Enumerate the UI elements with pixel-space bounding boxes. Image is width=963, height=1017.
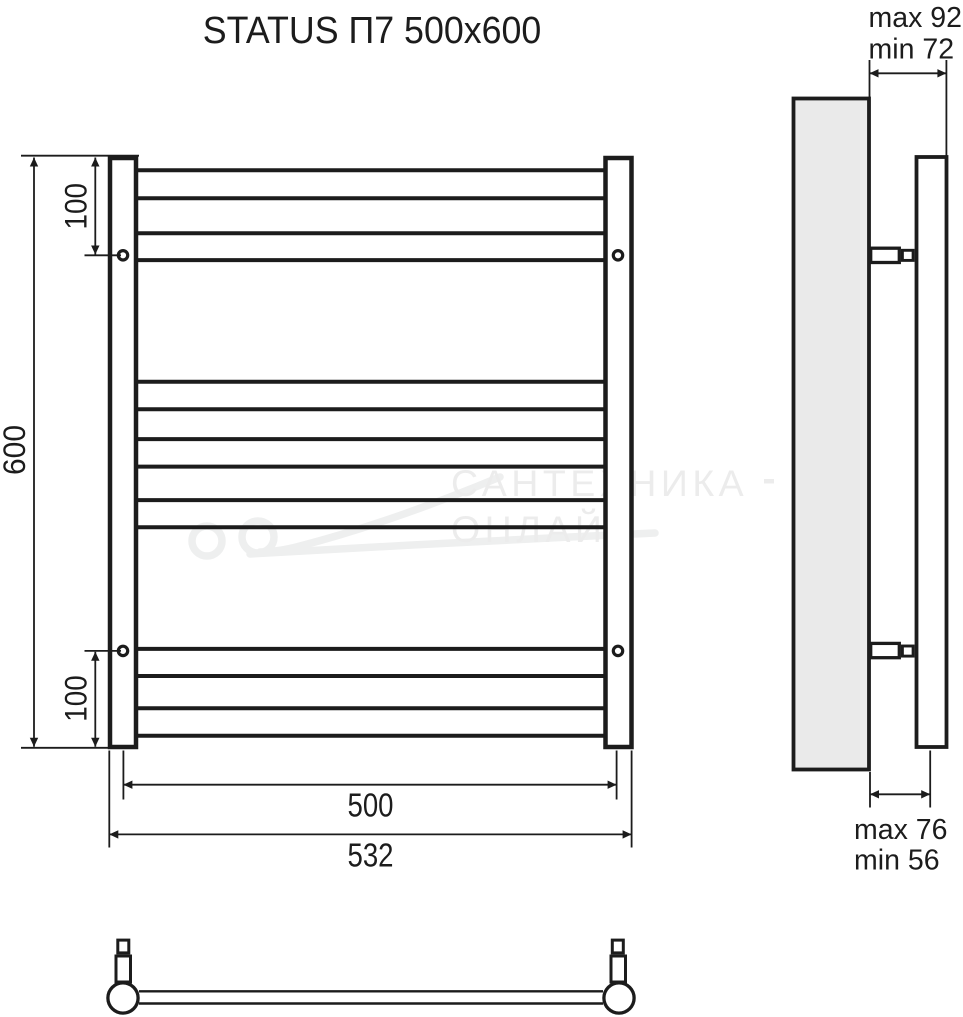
svg-text:min 56: min 56 — [854, 845, 940, 877]
svg-text:100: 100 — [57, 675, 93, 722]
svg-text:100: 100 — [57, 183, 93, 230]
svg-text:max 76: max 76 — [854, 814, 947, 846]
svg-text:STATUS П7 500x600: STATUS П7 500x600 — [203, 10, 542, 52]
svg-text:min 72: min 72 — [869, 34, 955, 66]
svg-text:max 92: max 92 — [869, 2, 962, 34]
svg-text:532: 532 — [348, 837, 394, 874]
svg-text:600: 600 — [0, 425, 32, 475]
svg-text:500: 500 — [348, 787, 394, 824]
